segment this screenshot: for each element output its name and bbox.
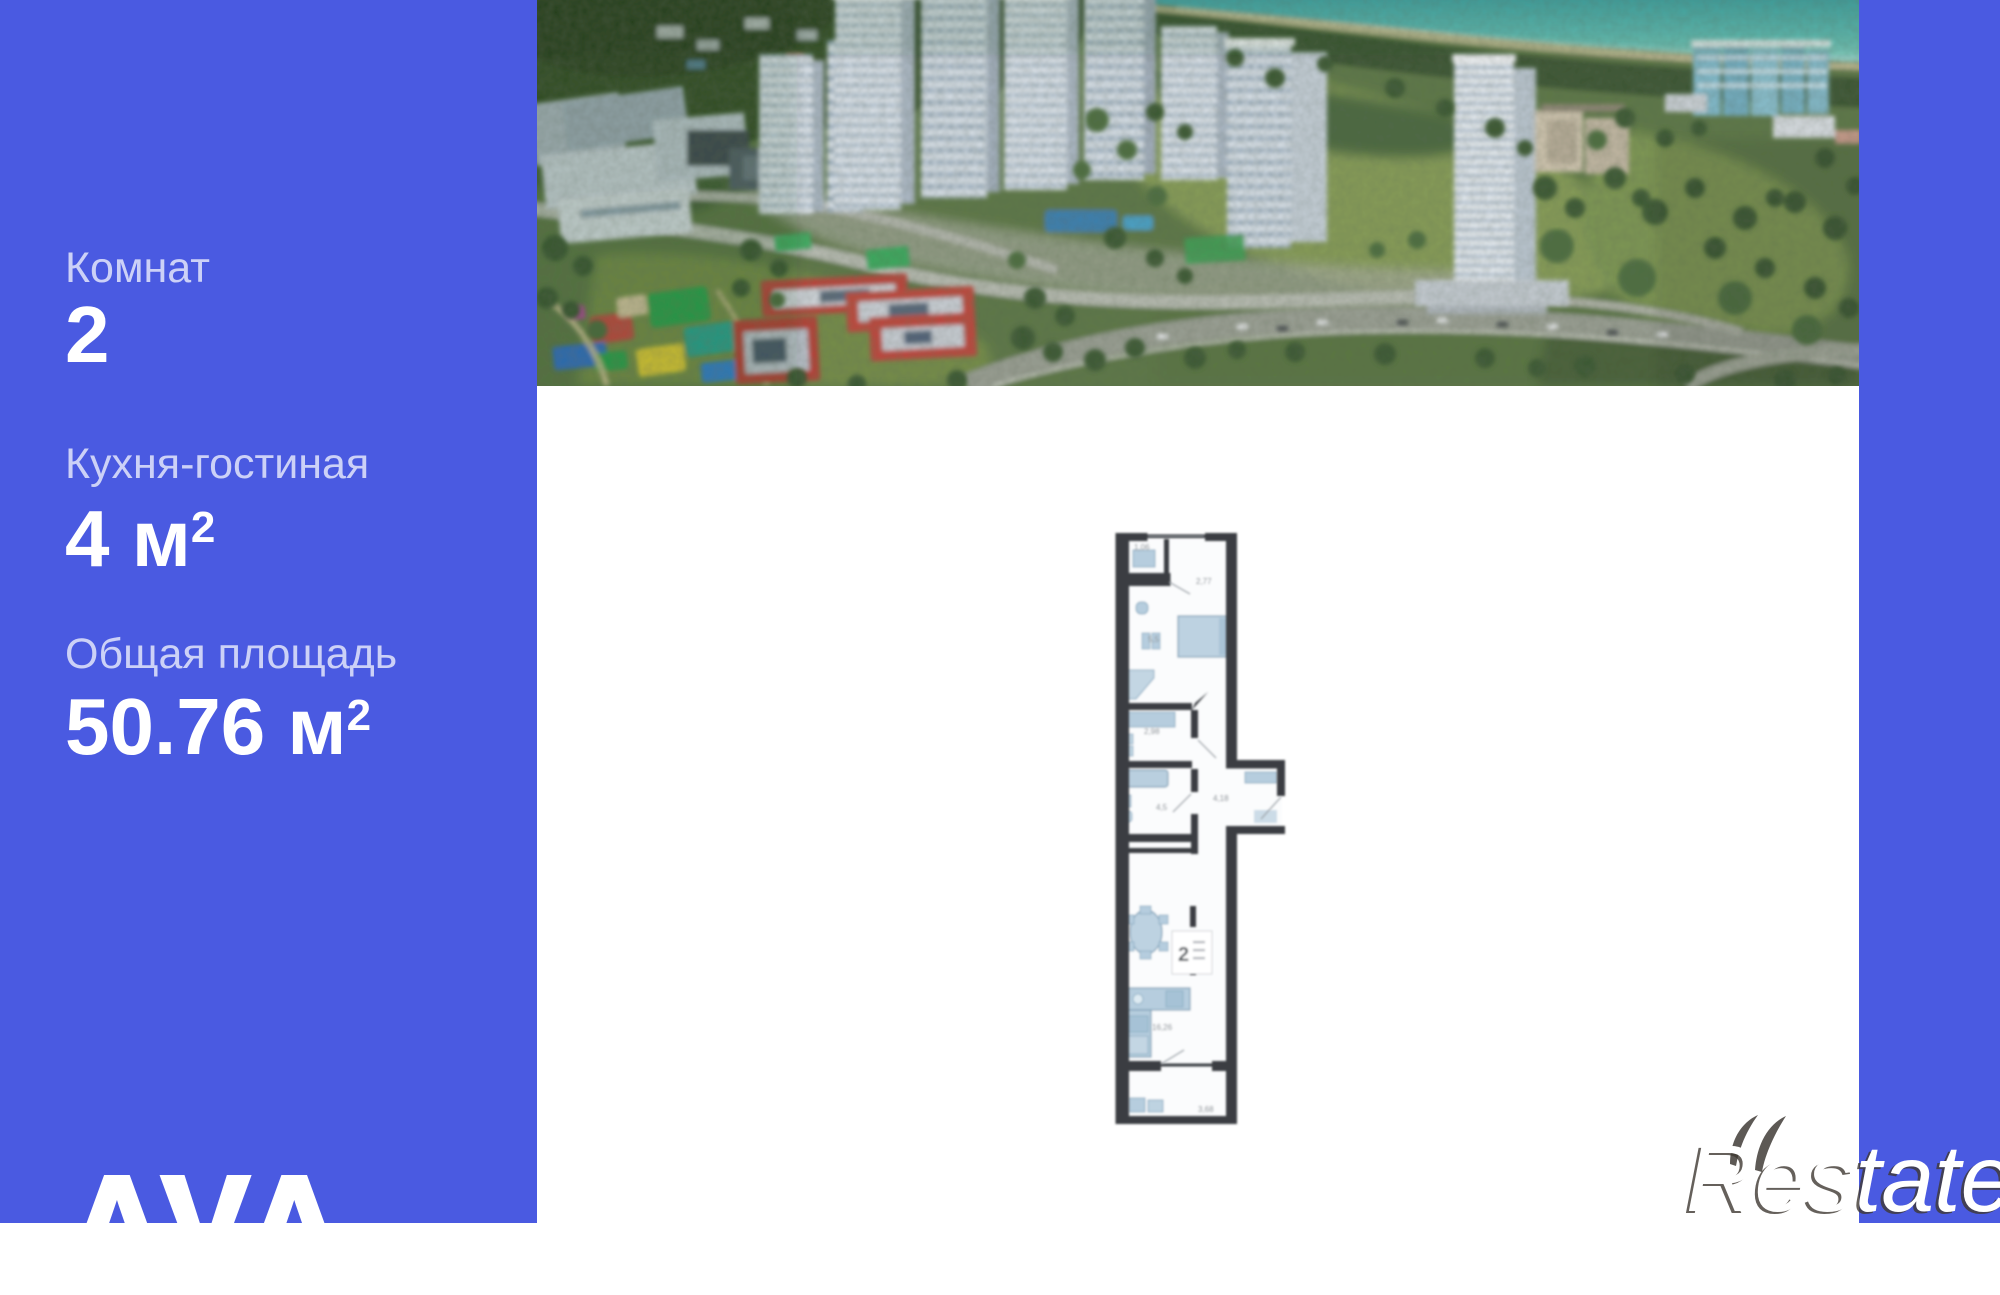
svg-text:4,18: 4,18 <box>1213 794 1229 803</box>
svg-text:1,06: 1,06 <box>1134 543 1150 552</box>
svg-text:2,98: 2,98 <box>1144 727 1160 736</box>
svg-text:3,68: 3,68 <box>1198 1105 1214 1114</box>
svg-text:2: 2 <box>1178 944 1189 966</box>
svg-text:16,26: 16,26 <box>1152 1023 1173 1032</box>
svg-text:4,5: 4,5 <box>1156 803 1168 812</box>
svg-text:5,5: 5,5 <box>1148 635 1160 644</box>
svg-text:2,77: 2,77 <box>1196 577 1212 586</box>
